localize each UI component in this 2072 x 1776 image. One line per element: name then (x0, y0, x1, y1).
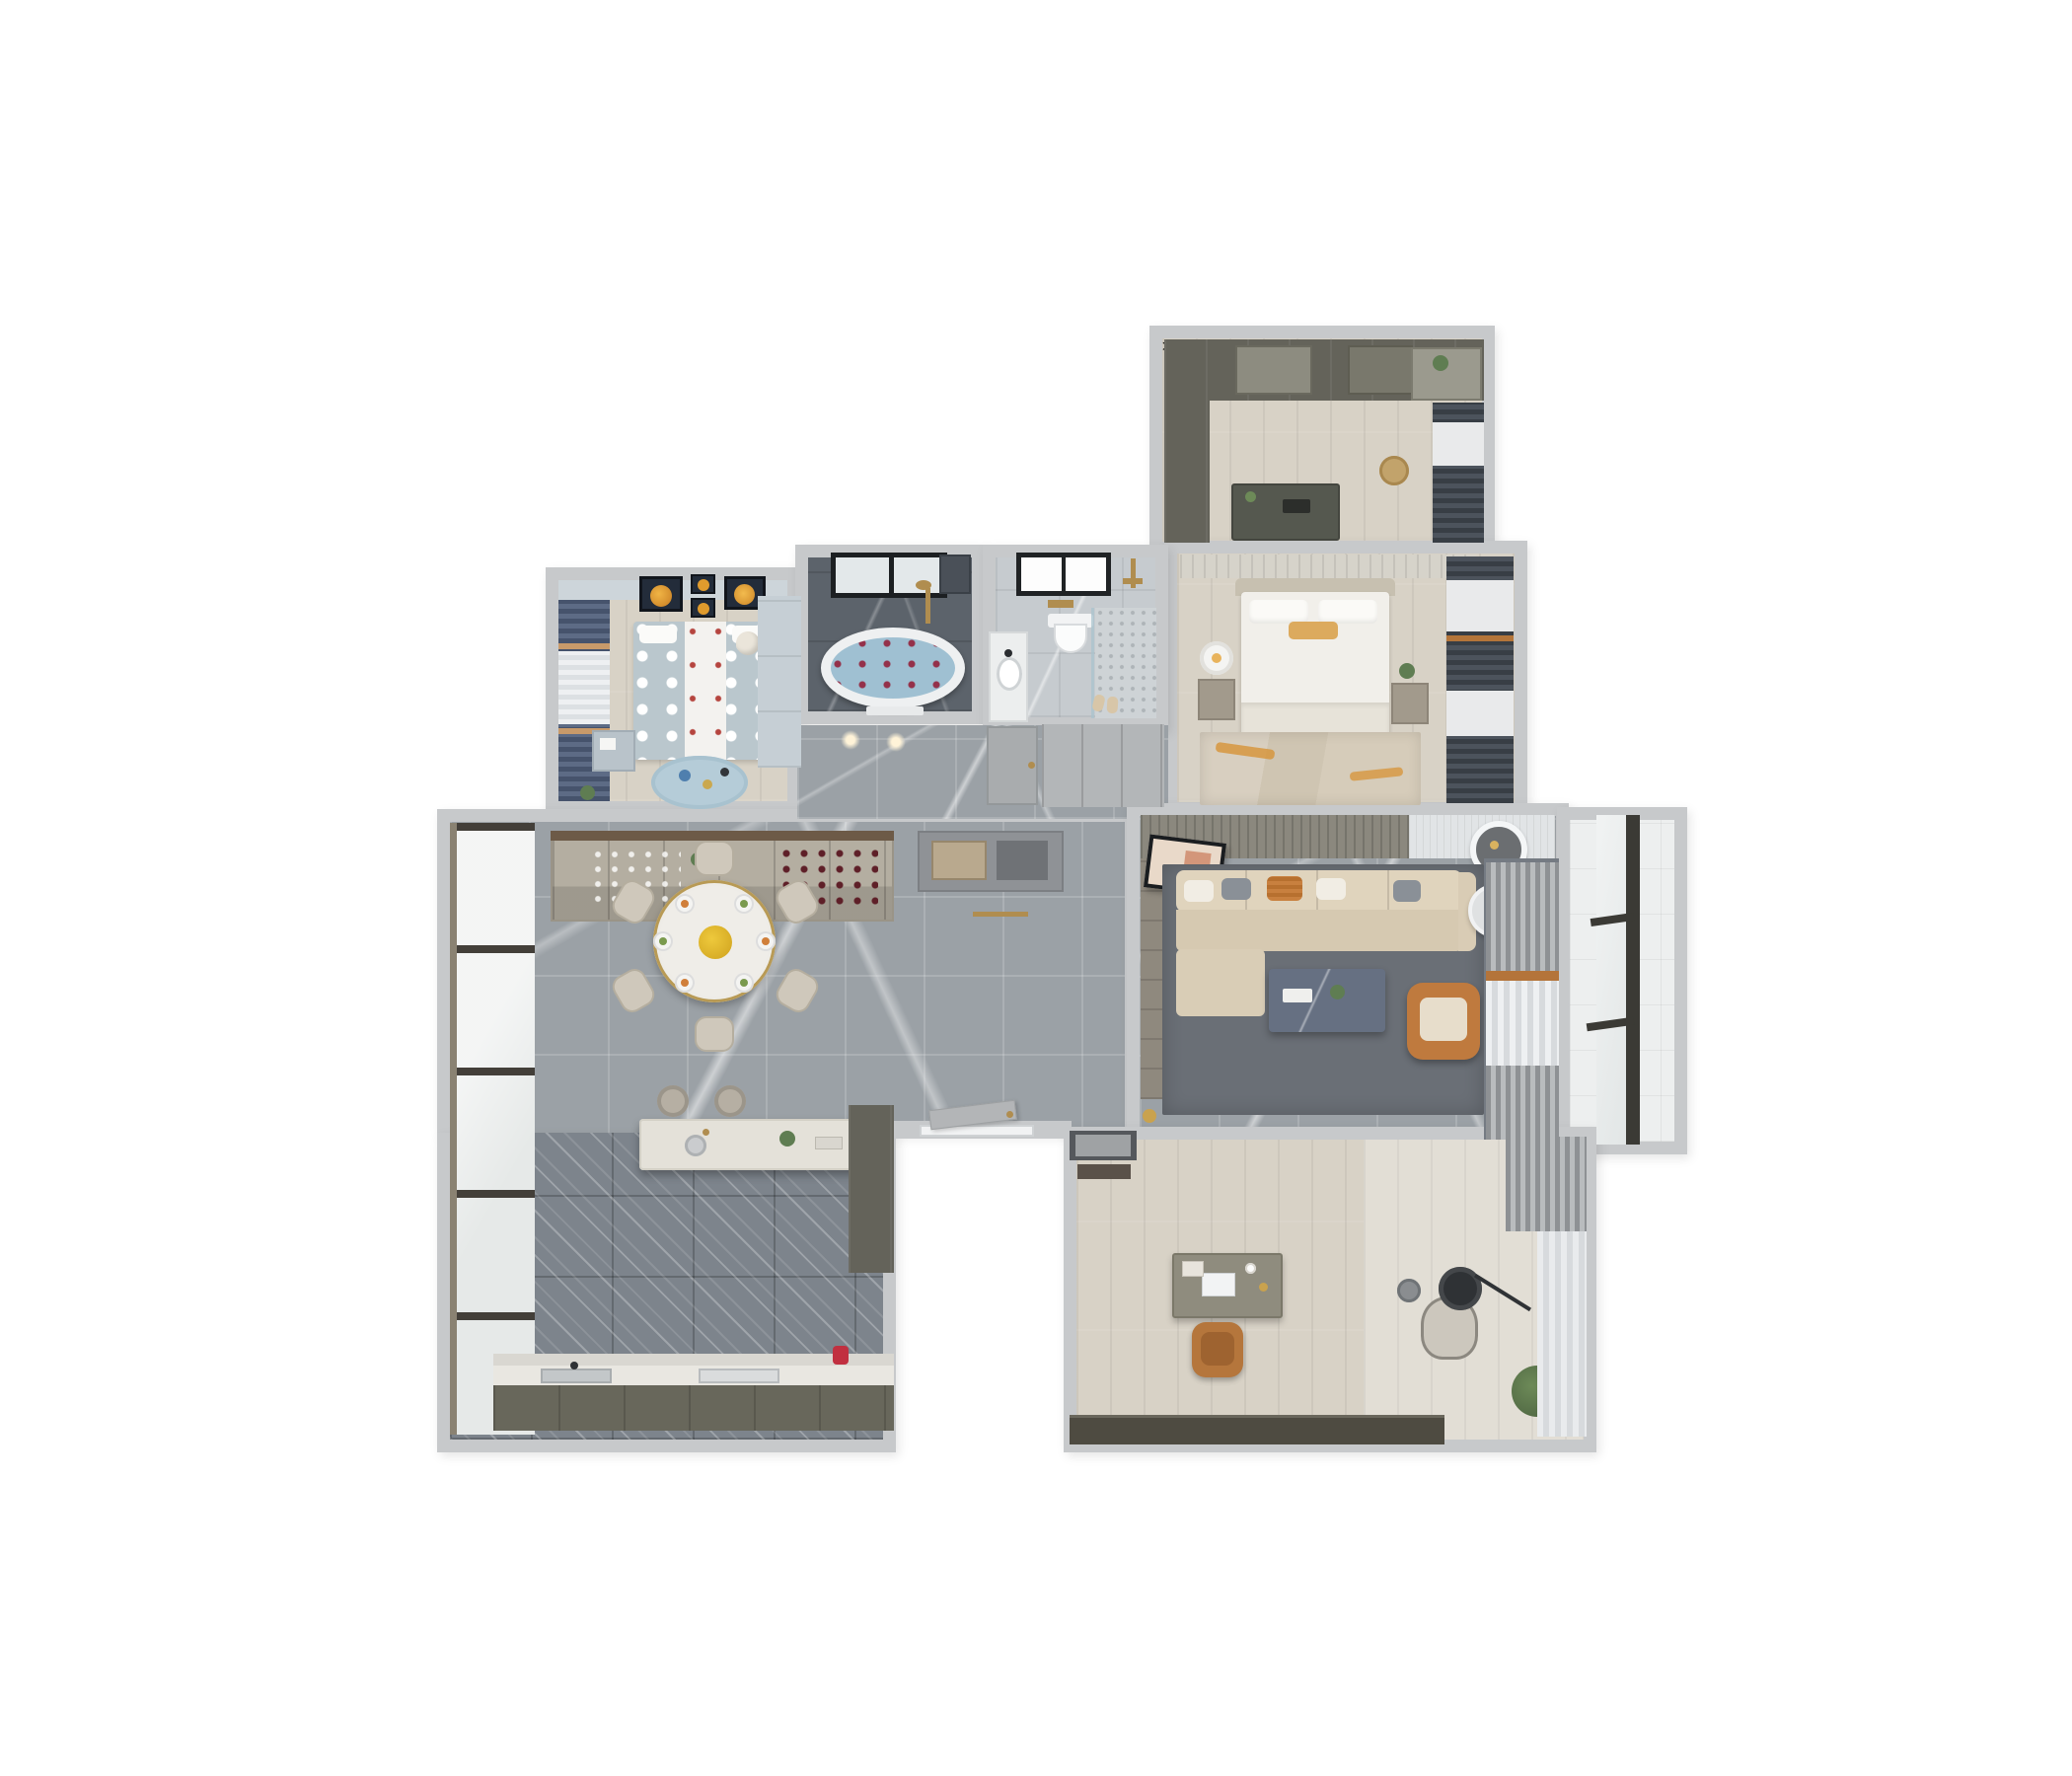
nightstand-right (1391, 683, 1429, 724)
throw-pillow-white (1316, 878, 1346, 900)
living-curtain-dark (1486, 862, 1559, 971)
orange-armchair (1407, 983, 1480, 1060)
side-table-small (1397, 1279, 1421, 1302)
slipper (1106, 697, 1118, 714)
bar-stool (714, 1085, 746, 1117)
closet-blind (1433, 422, 1484, 466)
dining-chair (695, 841, 734, 876)
kids-wardrobe (758, 596, 801, 768)
island-tray (815, 1137, 843, 1149)
kids-plant (580, 785, 595, 800)
desk-chair (1192, 1322, 1243, 1377)
bath2-window (1016, 553, 1111, 596)
gold-shower-arm (1123, 578, 1143, 584)
base-cabinets (493, 1385, 894, 1431)
throw-pillow-white (1184, 880, 1214, 902)
study-door-frame (1070, 1131, 1137, 1160)
coffee-cup (1245, 1263, 1256, 1274)
kids-curtain-rod (558, 643, 610, 649)
gold-shower-fixture (925, 588, 930, 624)
kitchen-sink (541, 1369, 612, 1383)
hall-paneled-doors (1042, 724, 1164, 807)
kids-desk-paper (600, 738, 616, 750)
plate (675, 894, 695, 914)
island-plant (779, 1131, 795, 1147)
gold-shower-head (916, 580, 931, 590)
desk-books (1182, 1261, 1204, 1277)
plate (756, 931, 776, 951)
kids-art-frame (691, 574, 715, 594)
balcony-window-frame (1626, 815, 1640, 1145)
living-curtain-sheer (1486, 981, 1559, 1066)
entry-console (918, 831, 1064, 892)
ceiling-light-center (1490, 841, 1499, 850)
nightstand-left (1198, 679, 1235, 720)
kids-pillow (639, 626, 677, 643)
pillow (1249, 600, 1308, 624)
master-blind (1446, 580, 1514, 631)
nightstand-plant (1399, 663, 1415, 679)
coffee-table-tray (1283, 989, 1312, 1002)
towel-rail (866, 706, 924, 715)
island-sink (685, 1135, 706, 1156)
gold-flush-plate (1048, 600, 1073, 608)
gold-floor-lamp (1143, 1109, 1156, 1123)
kids-art-frame (639, 576, 683, 612)
gold-accent-pillow (1289, 622, 1338, 639)
closet-tall-cabinet (1164, 393, 1210, 543)
lamp-glow (1212, 653, 1221, 663)
throw-pillow-orange (1267, 876, 1302, 901)
study-sheer-curtain (1537, 1231, 1587, 1437)
kitchen-tall-cabinet (849, 1105, 894, 1273)
gold-floor-strip (973, 912, 1028, 917)
throw-pillow-gray (1221, 878, 1251, 900)
island-tray (1283, 499, 1310, 513)
red-kettle (833, 1346, 849, 1365)
toy (679, 770, 691, 781)
island-plant (1245, 491, 1256, 502)
front-door-handle (1006, 1111, 1013, 1118)
plate (734, 973, 754, 993)
plate (734, 894, 754, 914)
coffee-table-plant (1330, 985, 1345, 999)
balcony-window-glass (1596, 815, 1626, 1145)
ceiling-spotlight (841, 730, 860, 750)
plate (675, 973, 695, 993)
teddy-bear (736, 631, 760, 655)
cooktop (699, 1369, 779, 1383)
freestanding-bathtub (821, 628, 965, 708)
kids-art-frame (691, 598, 715, 618)
study-corner-curtain (1506, 1137, 1587, 1231)
toy (703, 779, 712, 789)
living-curtain-dark (1486, 1066, 1559, 1145)
master-blind (1446, 691, 1514, 736)
bath1-shelf (939, 555, 971, 594)
kids-desk (592, 730, 635, 772)
kitchen-faucet (570, 1362, 578, 1369)
vanity-faucet (1004, 649, 1012, 657)
pillow (1318, 600, 1377, 624)
flower-centerpiece (699, 925, 732, 959)
floor-plan-render: > (0, 0, 2072, 1776)
sofa-chaise (1176, 949, 1265, 1016)
closet-plant (1433, 355, 1448, 371)
kids-sheer (558, 651, 610, 724)
closet-open-shelves (1235, 345, 1312, 395)
study-door-mat (1077, 1164, 1131, 1179)
throw-pillow-gray (1393, 880, 1421, 902)
closet-dresser-mirror (1411, 347, 1482, 401)
cabinet-top-rail (551, 831, 894, 841)
laptop (1202, 1273, 1235, 1296)
sofa-seat (1176, 910, 1462, 951)
door-handle-gold (1028, 762, 1035, 769)
curtain-rod-accent (1446, 635, 1514, 641)
kids-bed-runner (685, 622, 726, 760)
desk-lamp (1259, 1283, 1268, 1292)
island-faucet (703, 1129, 709, 1136)
vanity-sink (997, 657, 1022, 691)
plate (653, 931, 673, 951)
bar-stool (657, 1085, 689, 1117)
dining-chair (695, 1016, 734, 1052)
laundry-basket (1379, 456, 1409, 485)
curtain-rod-accent (1486, 971, 1559, 981)
headboard-wall (1180, 555, 1476, 578)
study-low-cabinet (1070, 1415, 1444, 1444)
ceiling-spotlight (886, 732, 906, 752)
kids-round-rug (651, 756, 748, 809)
toy (720, 768, 729, 777)
closet-glass-wardrobe (1348, 345, 1413, 395)
floor-to-ceiling-windows (450, 823, 535, 1435)
